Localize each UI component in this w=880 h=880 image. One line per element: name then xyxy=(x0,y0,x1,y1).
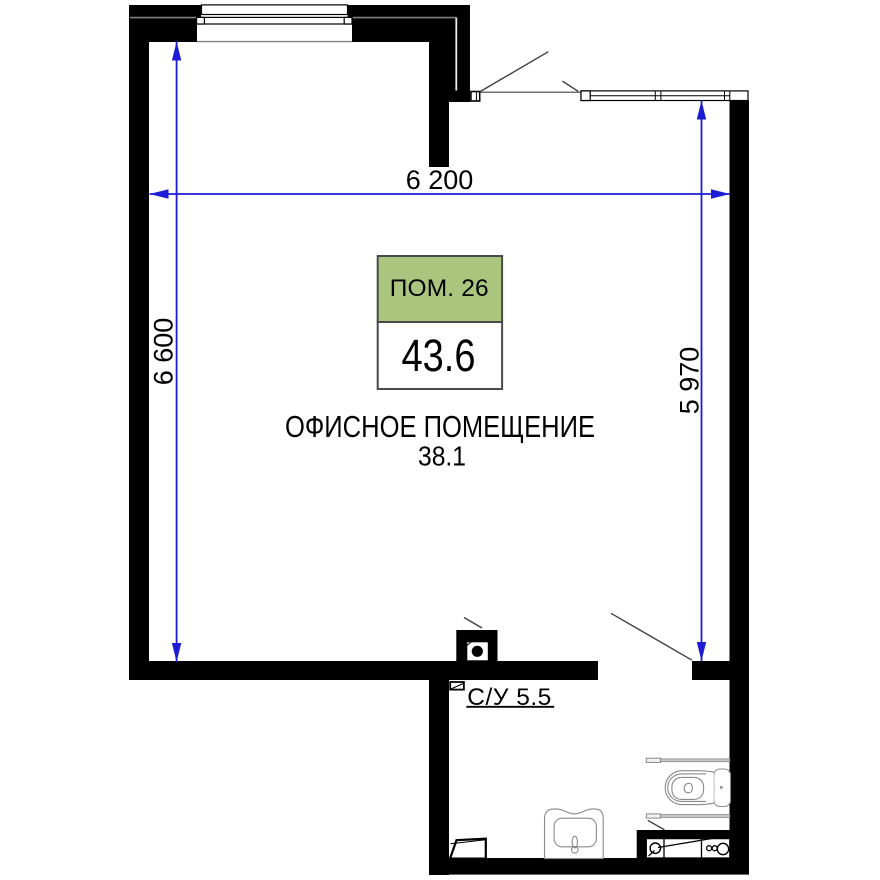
svg-text:43.6: 43.6 xyxy=(402,330,476,381)
svg-text:ПОМ. 26: ПОМ. 26 xyxy=(390,275,489,302)
svg-text:5 970: 5 970 xyxy=(674,347,704,415)
svg-text:38.1: 38.1 xyxy=(418,441,466,472)
svg-text:6 600: 6 600 xyxy=(149,318,179,386)
svg-text:6 200: 6 200 xyxy=(406,165,474,195)
svg-text:ОФИСНОЕ ПОМЕЩЕНИЕ: ОФИСНОЕ ПОМЕЩЕНИЕ xyxy=(285,409,595,444)
